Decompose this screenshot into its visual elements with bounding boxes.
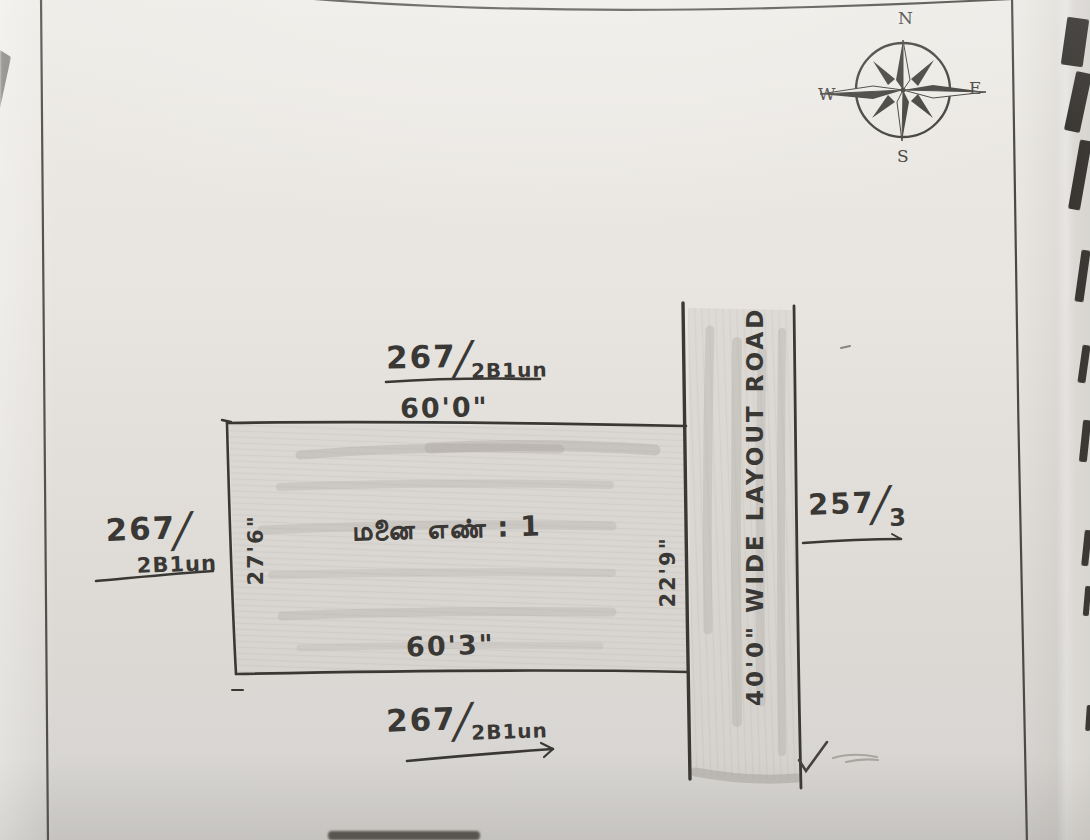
dimension-left-depth: 27'6" bbox=[244, 502, 268, 598]
adjacent-page-edge bbox=[1056, 0, 1090, 840]
dimension-right-depth: 22'9" bbox=[656, 524, 680, 620]
survey-number-north-den: 2B1un bbox=[471, 358, 548, 383]
road-label: 40'0" WIDE LAYOUT ROAD bbox=[742, 366, 768, 706]
survey-number-north: 267/2B1un bbox=[386, 335, 548, 377]
survey-number-east-num: 257 bbox=[807, 485, 875, 521]
survey-number-east-den: 3 bbox=[889, 503, 908, 532]
underline-east bbox=[803, 539, 901, 543]
survey-sketch-photo: N S E W 267/2B1un 60'0" 267/ 2B1un 27'6"… bbox=[0, 0, 1090, 840]
page-border-right bbox=[1012, 0, 1027, 840]
underline-south bbox=[407, 749, 553, 761]
survey-number-west: 267/ 2B1un bbox=[105, 506, 217, 579]
survey-number-north-num: 267 bbox=[386, 338, 457, 375]
compass-label-south: S bbox=[897, 146, 909, 166]
compass-label-north: N bbox=[898, 8, 913, 28]
compass-label-east: E bbox=[969, 78, 981, 98]
page-border-left bbox=[41, 0, 48, 840]
survey-number-south: 267/2B1un bbox=[385, 695, 548, 740]
photo-paper-edge-gap bbox=[328, 831, 480, 840]
survey-number-west-num: 267 bbox=[105, 509, 177, 547]
dimension-bottom-width: 60'3" bbox=[405, 628, 495, 662]
plot-name-label: மனை எண் : 1 bbox=[352, 510, 542, 549]
dimension-top-width: 60'0" bbox=[400, 391, 489, 424]
check-mark bbox=[799, 742, 878, 771]
survey-number-east: 257/3 bbox=[807, 480, 907, 522]
compass-label-west: W bbox=[818, 84, 835, 104]
survey-number-south-den: 2B1un bbox=[471, 718, 548, 745]
survey-number-south-num: 267 bbox=[385, 700, 457, 738]
compass-rose-icon bbox=[820, 40, 986, 141]
